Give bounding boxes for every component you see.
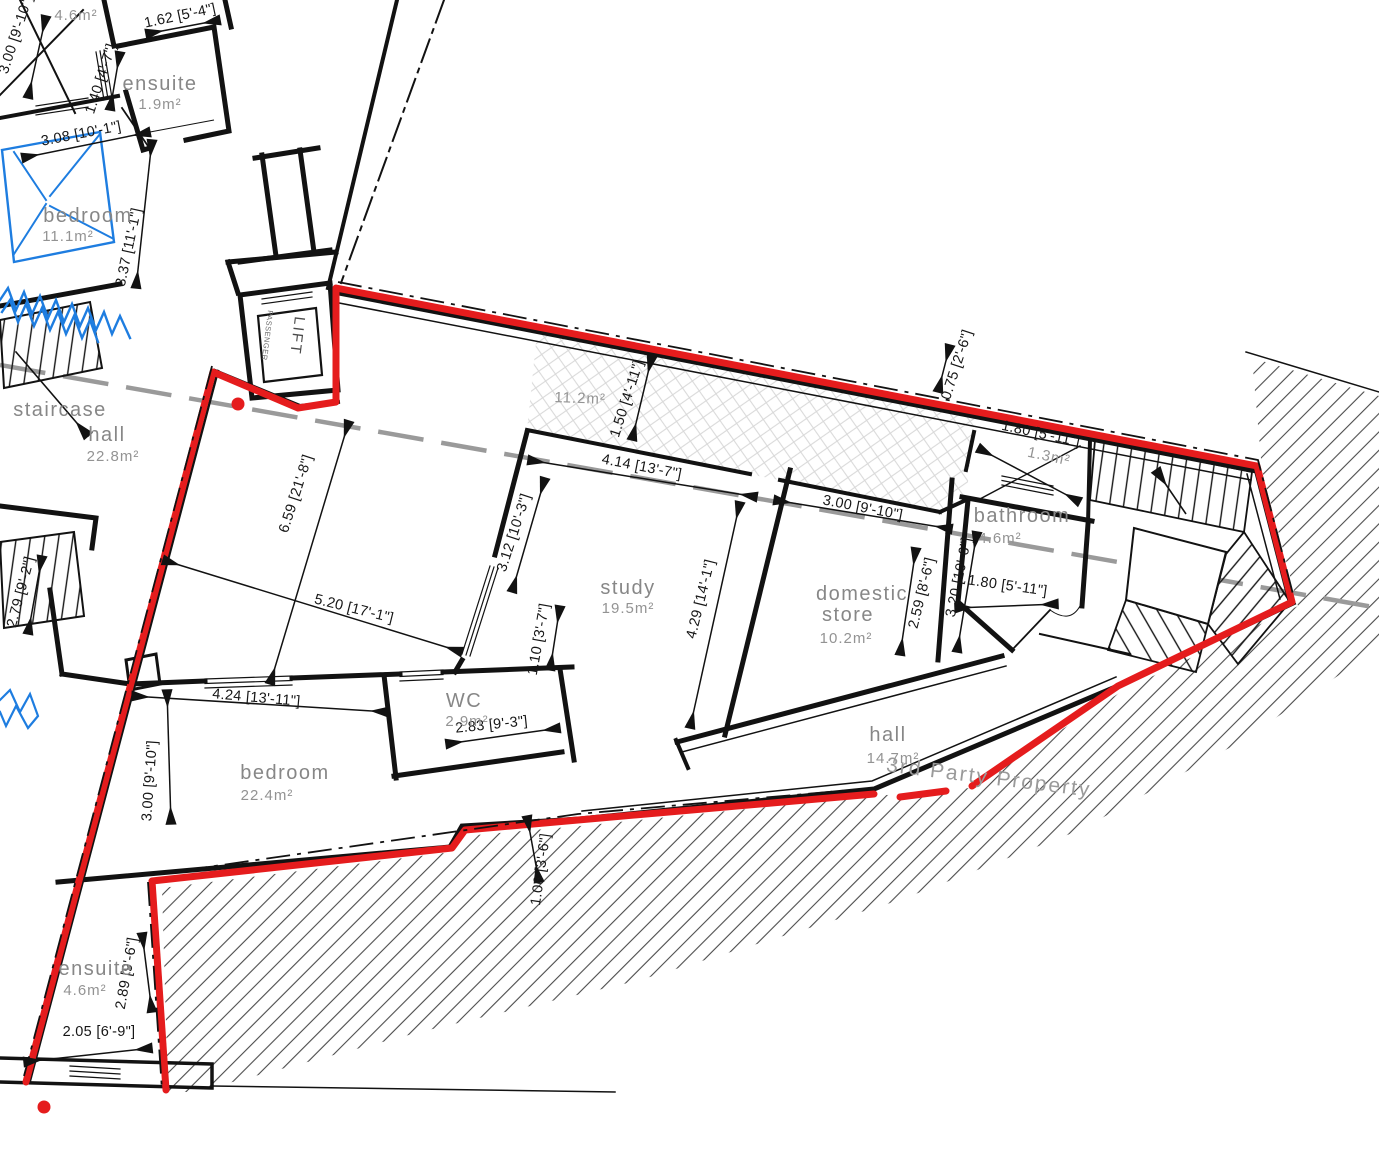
room-area-study: 19.5m²: [602, 600, 655, 617]
room-label-ensuite1: ensuite: [123, 73, 198, 95]
room-area-bedroom2: 22.4m²: [241, 787, 294, 804]
floor-plan-page: 3.00 [9'-10"] 1.62 [5'-4"] 1.40 [4'-7"] …: [0, 0, 1379, 1159]
party-wall: [328, 0, 397, 288]
dimension-label: 1.10 [3'-7"]: [525, 602, 553, 676]
room-label-study: study: [600, 577, 655, 599]
neighbor-bottom-line: [212, 1086, 615, 1092]
room-area-store: 10.2m²: [820, 630, 873, 647]
room-label-ensuite2: ensuite: [59, 958, 134, 980]
room-area-bathroom: 4.6m²: [978, 530, 1021, 547]
dimension-label: 4.24 [13'-11"]: [212, 686, 301, 710]
floor-plan-svg: 3.00 [9'-10"] 1.62 [5'-4"] 1.40 [4'-7"] …: [0, 0, 1379, 1159]
room-area-void-strip: 11.2m²: [554, 389, 606, 408]
dimension-label: 4.29 [14'-1"]: [684, 558, 719, 641]
hall2-wall-cap: [676, 740, 688, 768]
room-label-bathroom: bathroom: [974, 505, 1071, 527]
room-area-corner: 4.6m²: [54, 7, 97, 24]
dimension-label: 5.20 [17'-1"]: [313, 592, 396, 627]
void-strip-crosshatch: [527, 333, 975, 512]
room-label-wc: WC: [446, 690, 482, 712]
red-boundary-dot-1: [232, 398, 245, 411]
hall2-top-wall: [677, 656, 1002, 742]
dimension-label: 0.75 [2'-6"]: [938, 328, 976, 402]
room-label-store-1: domestic: [816, 583, 908, 605]
lift-door-lines: [262, 292, 312, 304]
room-label-bedroom2: bedroom: [240, 762, 329, 784]
room-area-bedroom1: 11.1m²: [42, 228, 94, 245]
room-area-closet: 1.3m²: [1026, 444, 1072, 470]
blue-scribble-3: [0, 690, 38, 728]
lift-shaft: [228, 252, 338, 398]
room-area-ensuite1: 1.9m²: [138, 96, 181, 113]
dimension-label: 6.59 [21'-8"]: [276, 453, 316, 535]
dimension-label: 2.59 [8'-6"]: [906, 556, 939, 630]
bathroom-door-arc: [1050, 606, 1080, 616]
room-label-bedroom1: bedroom: [43, 205, 132, 227]
ensuite2-window: [70, 1066, 120, 1079]
dimension-label: 1.80 [5'-11"]: [967, 573, 1049, 600]
room-area-hall1: 22.8m²: [87, 448, 140, 465]
band-window-2: [400, 670, 443, 681]
room-label-store-2: store: [822, 604, 874, 626]
band-wall: [130, 667, 572, 684]
chimney-walls: [240, 148, 330, 262]
lift-sublabel: PASSENGER: [260, 310, 275, 361]
ensuite1-door-leaf: [122, 108, 150, 149]
dimension-label: 2.05 [6'-9"]: [63, 1024, 136, 1040]
bathroom-window: [1002, 476, 1053, 495]
lift-label: LIFT: [286, 316, 308, 357]
window-bedroom1: [36, 98, 88, 115]
party-wall-dashdot: [341, 0, 444, 283]
bathroom-door-leaf: [1012, 610, 1050, 650]
room-area-wc: 2.9m²: [445, 713, 488, 730]
room-area-ensuite2: 4.6m²: [63, 982, 106, 999]
red-boundary-dot-2: [38, 1101, 51, 1114]
dimension-label: 3.08 [10'-1"]: [40, 118, 123, 149]
dimension-label: 3.00 [9'-10"]: [139, 740, 161, 822]
crosshatch-area: [527, 333, 975, 512]
study-glazing: [462, 566, 498, 656]
dimension-label: 1.40 [4'-7"]: [82, 42, 120, 116]
room-label-staircase: staircase: [13, 399, 107, 421]
room-label-hall2: hall: [869, 724, 906, 746]
room-label-hall1: hall: [88, 424, 125, 446]
study-right-wall: [725, 470, 790, 735]
